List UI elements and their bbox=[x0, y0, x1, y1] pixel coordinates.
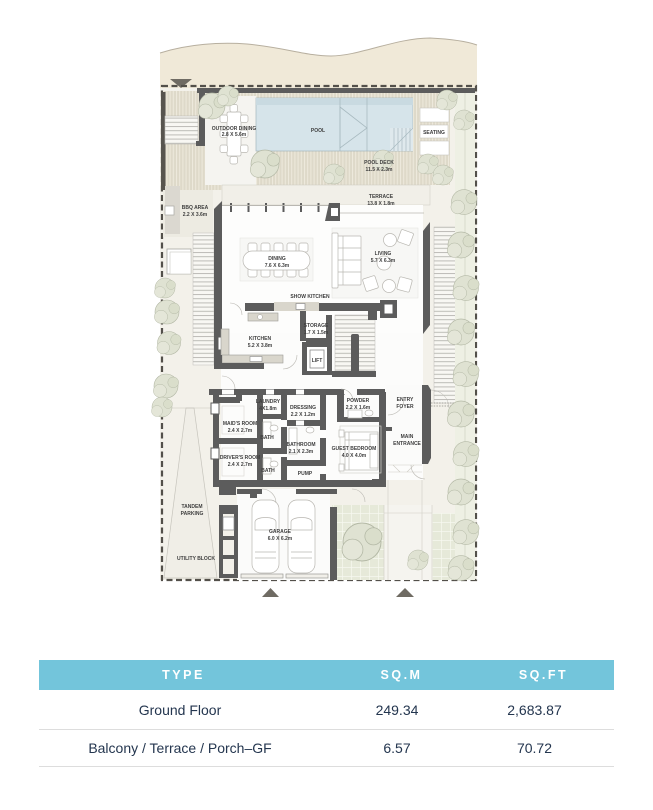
svg-text:BBQ AREA: BBQ AREA bbox=[182, 205, 209, 211]
svg-text:2.8 X 5.6m: 2.8 X 5.6m bbox=[222, 132, 247, 138]
svg-text:BATHROOM: BATHROOM bbox=[286, 442, 315, 448]
svg-text:STORAGE: STORAGE bbox=[304, 323, 329, 329]
svg-text:5.7 X 6.3m: 5.7 X 6.3m bbox=[371, 258, 396, 264]
svg-text:LAUNDRY: LAUNDRY bbox=[256, 399, 281, 405]
svg-text:POOL: POOL bbox=[311, 128, 325, 134]
svg-text:4X1.8m: 4X1.8m bbox=[259, 406, 277, 412]
svg-text:MAID'S ROOM: MAID'S ROOM bbox=[223, 421, 257, 427]
svg-text:PUMP: PUMP bbox=[298, 471, 313, 477]
svg-text:ENTRANCE: ENTRANCE bbox=[393, 441, 421, 447]
svg-text:11.5 X 2.3m: 11.5 X 2.3m bbox=[366, 167, 394, 173]
svg-text:LIFT: LIFT bbox=[312, 358, 323, 364]
svg-text:2.4 X 2.7m: 2.4 X 2.7m bbox=[228, 462, 253, 468]
svg-text:KITCHEN: KITCHEN bbox=[249, 336, 272, 342]
svg-text:2.2 X 1.2m: 2.2 X 1.2m bbox=[291, 412, 316, 418]
svg-text:SHOW KITCHEN: SHOW KITCHEN bbox=[290, 294, 330, 300]
svg-text:MAIN: MAIN bbox=[401, 434, 414, 440]
svg-text:SEATING: SEATING bbox=[423, 130, 445, 136]
svg-text:FOYER: FOYER bbox=[396, 404, 414, 410]
svg-text:13.8 X 1.8m: 13.8 X 1.8m bbox=[367, 201, 395, 207]
svg-text:7.6 X 6.3m: 7.6 X 6.3m bbox=[265, 263, 290, 269]
svg-text:5.2 X 3.8m: 5.2 X 3.8m bbox=[248, 343, 273, 349]
svg-text:2.2 X 3.6m: 2.2 X 3.6m bbox=[183, 212, 208, 218]
svg-text:2.1 X 2.3m: 2.1 X 2.3m bbox=[289, 449, 314, 455]
svg-text:2.2 X 1.6m: 2.2 X 1.6m bbox=[346, 405, 371, 411]
svg-text:6.0 X 6.2m: 6.0 X 6.2m bbox=[268, 536, 293, 542]
svg-text:DRIVER'S ROOM: DRIVER'S ROOM bbox=[220, 455, 260, 461]
svg-text:GUEST BEDROOM: GUEST BEDROOM bbox=[332, 446, 377, 452]
svg-text:2.4 X 2.7m: 2.4 X 2.7m bbox=[228, 428, 253, 434]
svg-text:POWDER: POWDER bbox=[347, 398, 370, 404]
svg-text:PARKING: PARKING bbox=[181, 511, 204, 517]
svg-text:GARAGE: GARAGE bbox=[269, 529, 292, 535]
svg-text:LIVING: LIVING bbox=[375, 251, 392, 257]
svg-text:DINING: DINING bbox=[268, 256, 286, 262]
svg-text:1.7 X 1.5m: 1.7 X 1.5m bbox=[304, 330, 329, 336]
svg-text:POOL DECK: POOL DECK bbox=[364, 160, 394, 166]
svg-text:DRESSING: DRESSING bbox=[290, 405, 316, 411]
svg-text:TANDEM: TANDEM bbox=[181, 504, 202, 510]
svg-text:TERRACE: TERRACE bbox=[369, 194, 394, 200]
svg-text:ENTRY: ENTRY bbox=[397, 397, 414, 403]
svg-text:BATH: BATH bbox=[260, 435, 274, 441]
svg-text:BATH: BATH bbox=[261, 468, 275, 474]
svg-text:UTILITY BLOCK: UTILITY BLOCK bbox=[177, 556, 215, 562]
svg-text:4.0 X 4.0m: 4.0 X 4.0m bbox=[342, 453, 367, 459]
